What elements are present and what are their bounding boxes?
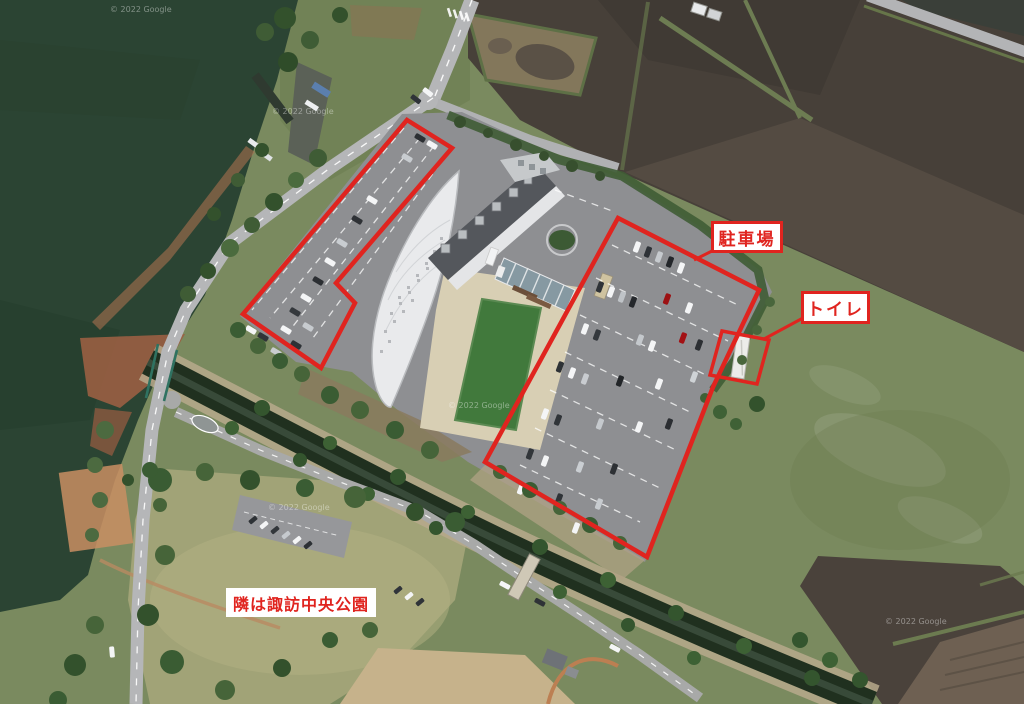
satellite-imagery: © 2022 Google © 2022 Google © 2022 Googl… [0,0,1024,704]
annotated-satellite-map: © 2022 Google © 2022 Google © 2022 Googl… [0,0,1024,704]
map-watermark: © 2022 Google [110,5,172,14]
map-watermark: © 2022 Google [272,107,334,116]
map-watermark: © 2022 Google [268,503,330,512]
island-tree [549,230,575,250]
parking-label: 駐車場 [711,221,783,253]
park-note-label: 隣は諏訪中央公園 [226,588,376,617]
toilet-label: トイレ [801,291,870,324]
map-watermark: © 2022 Google [448,401,510,410]
map-watermark: © 2022 Google [885,617,947,626]
